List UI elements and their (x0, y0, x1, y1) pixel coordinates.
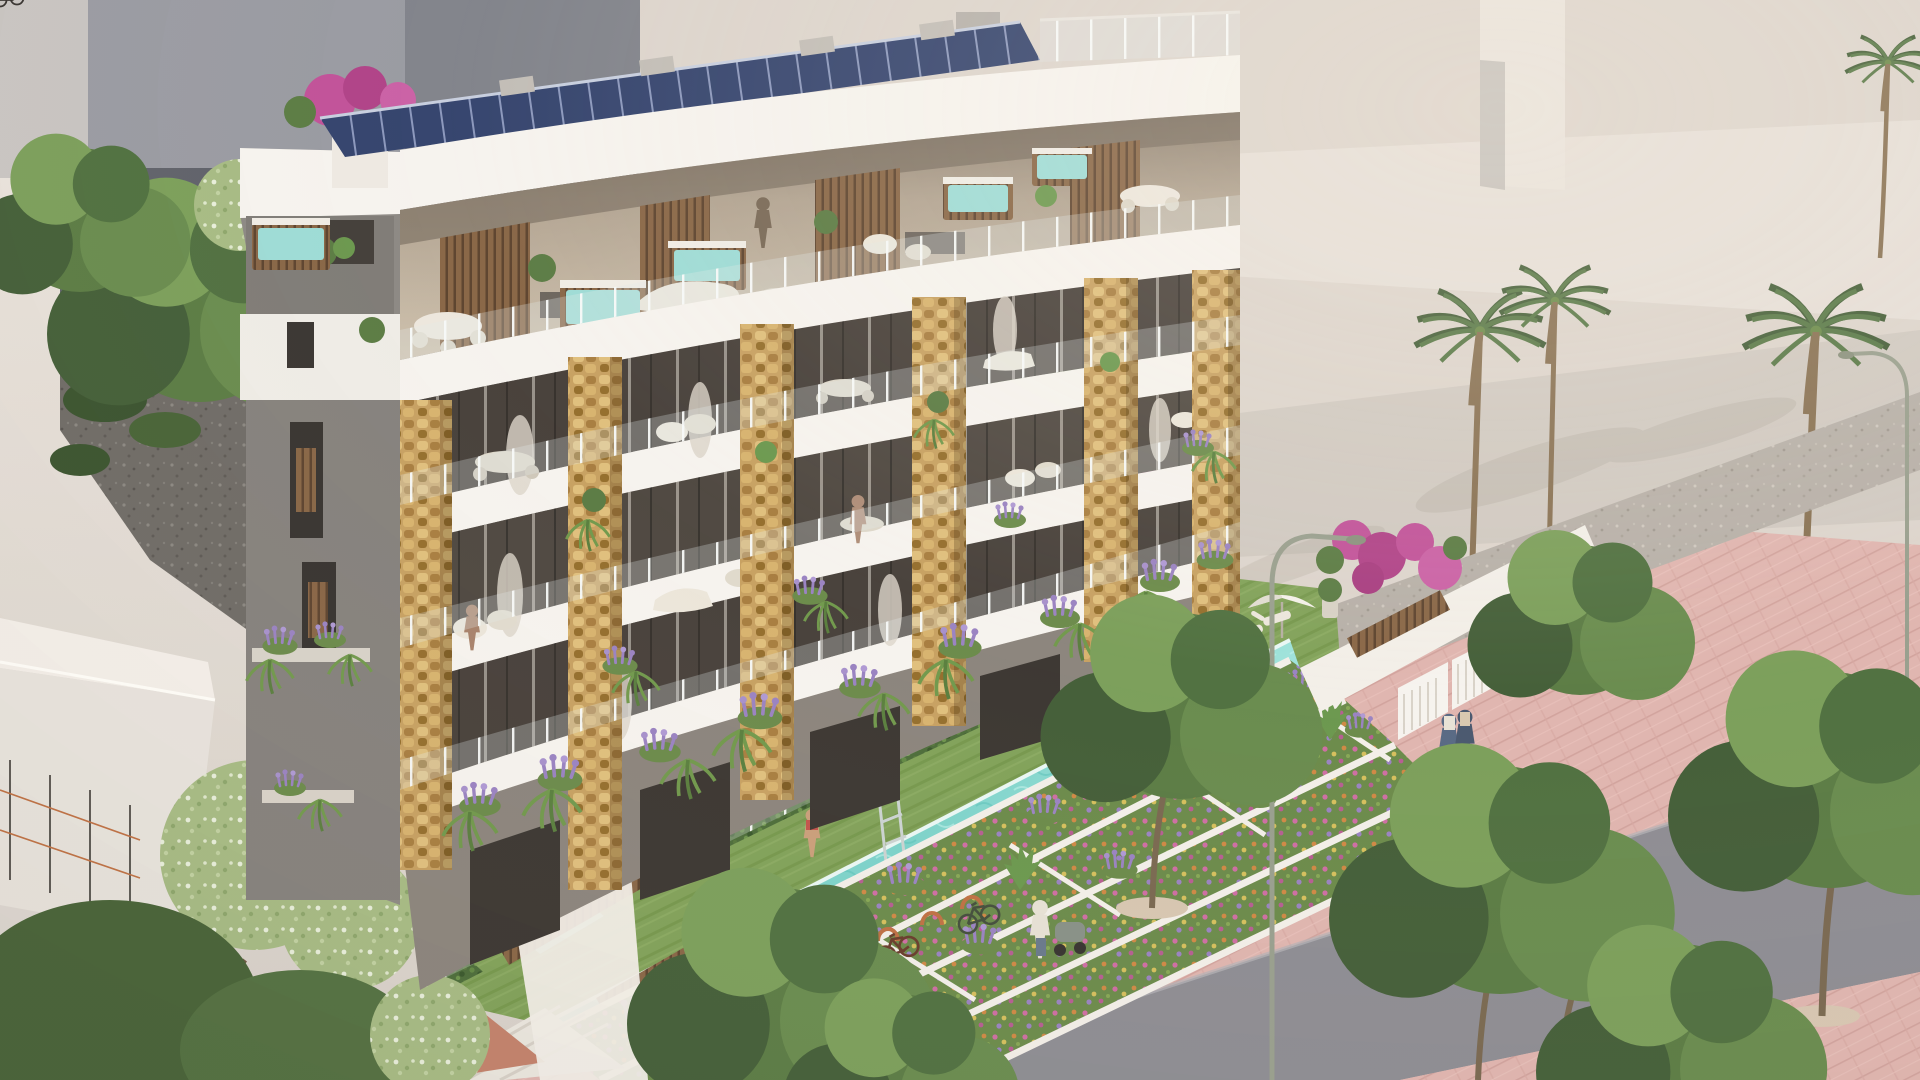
render-canvas (0, 0, 1920, 1080)
light-overlay (0, 0, 1920, 1080)
architectural-render (0, 0, 1920, 1080)
